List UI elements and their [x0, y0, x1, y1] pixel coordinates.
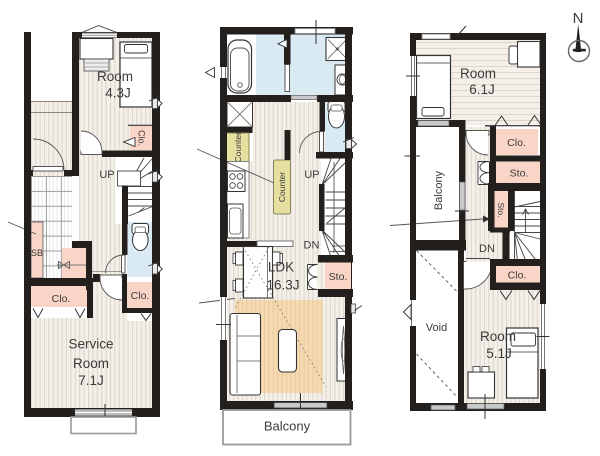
- svg-text:4.3J: 4.3J: [105, 86, 131, 101]
- svg-text:Clo.: Clo.: [131, 290, 150, 302]
- svg-text:5.1J: 5.1J: [486, 346, 512, 361]
- svg-text:Balcony: Balcony: [264, 419, 311, 434]
- svg-text:UP: UP: [304, 169, 319, 181]
- svg-text:Balcony: Balcony: [433, 170, 445, 210]
- svg-text:7.1J: 7.1J: [78, 373, 104, 388]
- svg-text:Room: Room: [460, 66, 496, 81]
- svg-text:Sto.: Sto.: [496, 202, 506, 217]
- svg-text:Clo.: Clo.: [508, 270, 527, 282]
- svg-text:UP: UP: [99, 169, 114, 181]
- svg-text:6.1J: 6.1J: [469, 82, 495, 97]
- svg-text:SB: SB: [31, 248, 43, 258]
- svg-text:LDK: LDK: [268, 260, 294, 275]
- svg-text:16.3J: 16.3J: [266, 278, 299, 293]
- svg-text:Service: Service: [68, 337, 113, 352]
- svg-text:DN: DN: [479, 243, 495, 255]
- svg-text:Counter: Counter: [277, 172, 287, 202]
- svg-text:N: N: [573, 10, 584, 27]
- svg-text:Clo.: Clo.: [137, 130, 147, 146]
- svg-text:Room: Room: [480, 329, 516, 344]
- svg-text:Clo.: Clo.: [52, 293, 71, 305]
- svg-text:Room: Room: [73, 356, 109, 371]
- svg-text:Void: Void: [426, 322, 447, 334]
- svg-text:Room: Room: [97, 69, 133, 84]
- svg-text:Sto.: Sto.: [329, 271, 348, 283]
- svg-text:DN: DN: [304, 240, 320, 252]
- svg-text:Counter: Counter: [233, 132, 243, 162]
- svg-text:Sto.: Sto.: [510, 168, 529, 180]
- svg-text:Clo.: Clo.: [507, 137, 526, 149]
